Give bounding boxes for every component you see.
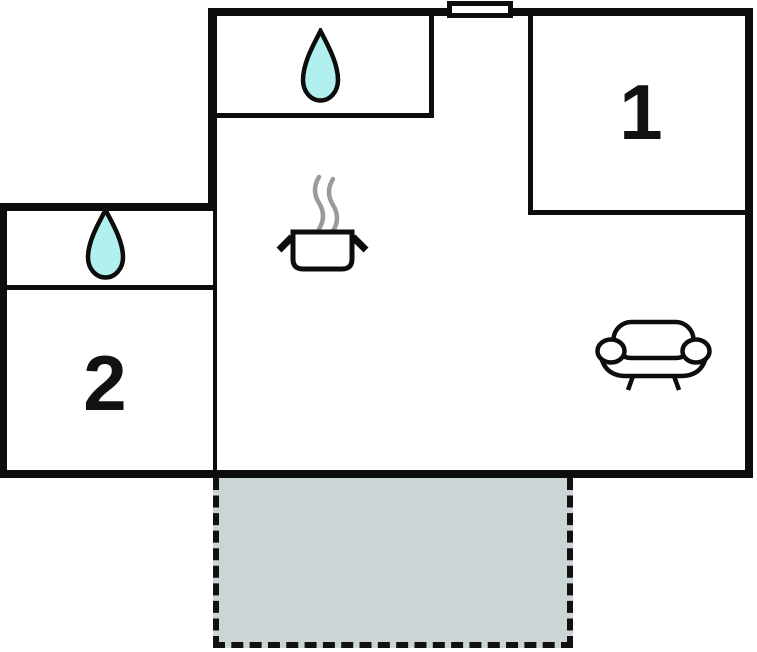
wall-room1-bottom — [528, 210, 745, 215]
wall-annex-left — [0, 203, 7, 478]
wall-kitchen-bottom — [213, 113, 434, 118]
water-drop-shape — [303, 31, 338, 101]
door-window — [447, 1, 513, 18]
sofa-armrest-left — [598, 340, 625, 363]
water-drop-shape — [88, 210, 123, 278]
wall-bottom — [0, 470, 753, 478]
wall-room1-left — [528, 16, 533, 215]
sofa-icon — [595, 316, 713, 394]
water-drop-icon — [84, 207, 127, 281]
wall-kitchen-right — [429, 16, 434, 118]
floor-plan: 1 2 — [0, 0, 757, 652]
pot-handle-left — [279, 237, 292, 250]
sofa-armrest-right — [683, 340, 710, 363]
room-1-label: 1 — [591, 62, 691, 162]
pot-body — [293, 232, 352, 269]
water-drop-icon — [299, 28, 342, 104]
wall-left-upper — [208, 8, 217, 211]
room-2-label: 2 — [55, 333, 155, 433]
wall-right — [745, 8, 753, 478]
terrace-area — [213, 478, 573, 648]
steam-line — [329, 179, 337, 231]
steam-line — [315, 177, 323, 229]
pot-handle-right — [353, 237, 366, 250]
wall-annex-divider — [7, 285, 215, 290]
wall-interior-left — [213, 211, 217, 470]
cooking-pot-icon — [276, 172, 372, 274]
